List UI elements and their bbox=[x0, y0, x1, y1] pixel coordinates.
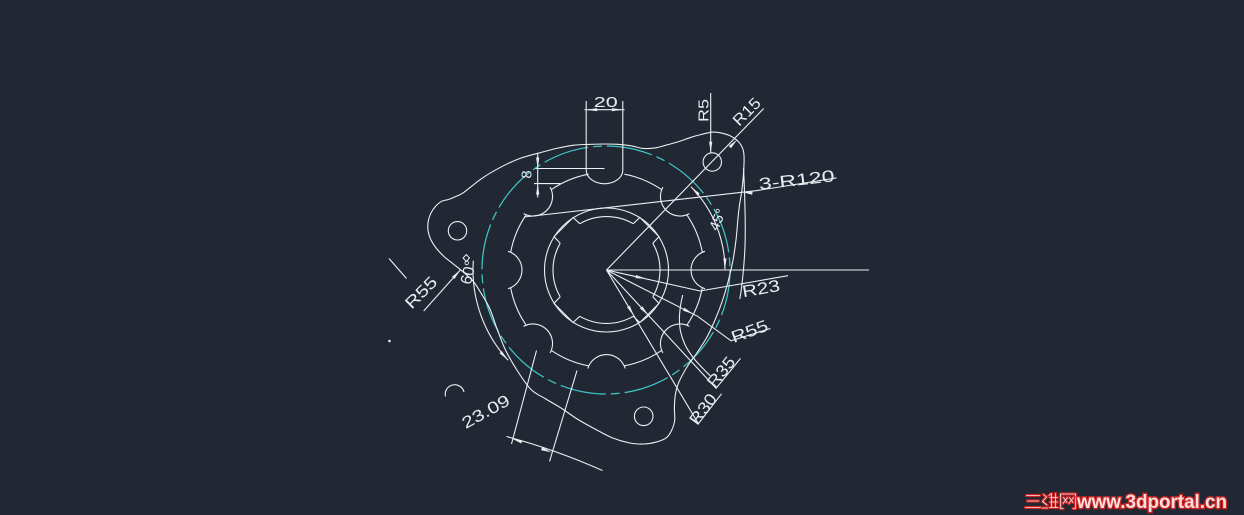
svg-text:8: 8 bbox=[519, 170, 536, 178]
svg-text:20: 20 bbox=[594, 94, 618, 111]
svg-text:R5: R5 bbox=[696, 99, 713, 122]
svg-text:www.3dportal.cn: www.3dportal.cn bbox=[1076, 491, 1227, 513]
